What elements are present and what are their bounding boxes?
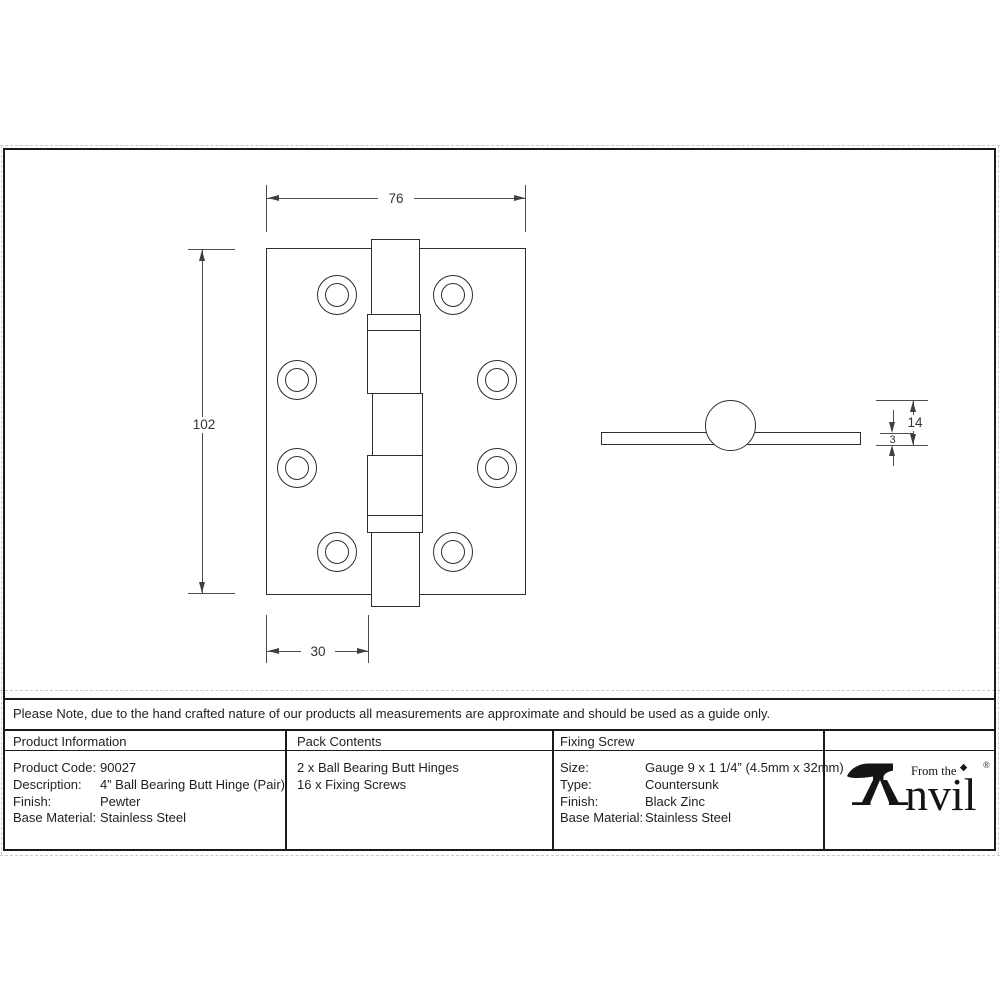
knuckle-circle [705,400,756,451]
from-the-anvil-logo: From the nvil ® [845,756,995,820]
screw-hole-ring [325,283,349,307]
dimension-value: 14 [901,415,929,431]
field-label: Product Code: [13,760,100,777]
hinge-knuckle-segment [372,393,423,456]
bearing-ring [367,515,423,533]
screw-hole-ring [485,368,509,392]
column-header-pack-contents: Pack Contents [297,734,382,749]
logo-brand-text: nvil [905,769,977,820]
field-value: Countersunk [645,777,719,792]
extension-line [188,249,235,250]
table-row: Base Material:Stainless Steel [13,810,285,827]
table-row: Description:4” Ball Bearing Butt Hinge (… [13,777,285,794]
dimension-line [893,456,894,466]
field-label: Finish: [13,794,100,811]
dimension-value: 76 [378,191,414,207]
dimension-value: 3 [887,435,898,445]
arrowhead-icon [514,195,525,201]
screw-hole-ring [441,540,465,564]
table-row: Size:Gauge 9 x 1 1/4” (4.5mm x 32mm) [560,760,844,777]
screw-hole-ring [485,456,509,480]
table-row: Finish:Black Zinc [560,794,844,811]
note-text: Please Note, due to the hand crafted nat… [13,706,770,721]
crop-mark [0,855,1000,856]
hinge-knuckle-segment [371,239,420,315]
bearing-ring [367,314,421,331]
hinge-knuckle-segment [367,455,423,516]
table-header-underline [5,750,994,752]
extension-line [266,615,267,663]
product-spec-sheet: 76 102 30 [0,0,1000,1000]
field-value: Gauge 9 x 1 1/4” (4.5mm x 32mm) [645,760,844,775]
field-value: 4” Ball Bearing Butt Hinge (Pair) [100,777,285,792]
extension-line [525,185,526,232]
table-row: Type:Countersunk [560,777,844,794]
crop-mark [0,145,1000,146]
extension-line [876,400,928,401]
screw-hole [317,532,357,572]
screw-hole-ring [441,283,465,307]
field-value: Pewter [100,794,140,809]
arrowhead-icon [268,648,279,654]
pack-contents-column: 2 x Ball Bearing Butt Hinges 16 x Fixing… [297,760,459,794]
arrowhead-icon [199,582,205,593]
screw-hole-ring [285,456,309,480]
extension-line [368,615,369,663]
field-label: Type: [560,777,645,794]
column-header-fixing-screw: Fixing Screw [560,734,634,749]
crop-mark [1,145,2,855]
screw-hole [433,532,473,572]
screw-hole [277,360,317,400]
extension-line [266,185,267,232]
extension-line [188,593,235,594]
dimension-value: 30 [301,644,335,660]
field-label: Size: [560,760,645,777]
field-value: Stainless Steel [100,810,186,825]
table-row: Base Material:Stainless Steel [560,810,844,827]
arrowhead-icon [199,250,205,261]
arrowhead-icon [889,422,895,433]
screw-hole-ring [325,540,349,564]
screw-hole [317,275,357,315]
dimension-value: 102 [184,417,224,433]
list-item: 2 x Ball Bearing Butt Hinges [297,760,459,777]
table-row: Finish:Pewter [13,794,285,811]
note-row: Please Note, due to the hand crafted nat… [5,698,994,731]
fixing-screw-column: Size:Gauge 9 x 1 1/4” (4.5mm x 32mm) Typ… [560,760,844,827]
field-value: Black Zinc [645,794,705,809]
field-label: Description: [13,777,100,794]
screw-hole [433,275,473,315]
arrowhead-icon [910,434,916,445]
hinge-knuckle-segment [367,330,421,394]
field-value: Stainless Steel [645,810,731,825]
arrowhead-icon [357,648,368,654]
registered-mark: ® [983,760,990,770]
arrowhead-icon [910,401,916,412]
hinge-knuckle-segment [371,532,420,607]
screw-hole-ring [285,368,309,392]
screw-hole [477,360,517,400]
field-label: Finish: [560,794,645,811]
table-row: Product Code:90027 [13,760,285,777]
column-header-product-information: Product Information [13,734,126,749]
crop-mark [998,145,999,855]
arrowhead-icon [889,445,895,456]
list-item: 16 x Fixing Screws [297,777,459,794]
field-value: 90027 [100,760,136,775]
arrowhead-icon [268,195,279,201]
extension-line [876,445,928,446]
field-label: Base Material: [13,810,100,827]
screw-hole [477,448,517,488]
product-information-column: Product Code:90027 Description:4” Ball B… [13,760,285,827]
field-label: Base Material: [560,810,645,827]
screw-hole [277,448,317,488]
